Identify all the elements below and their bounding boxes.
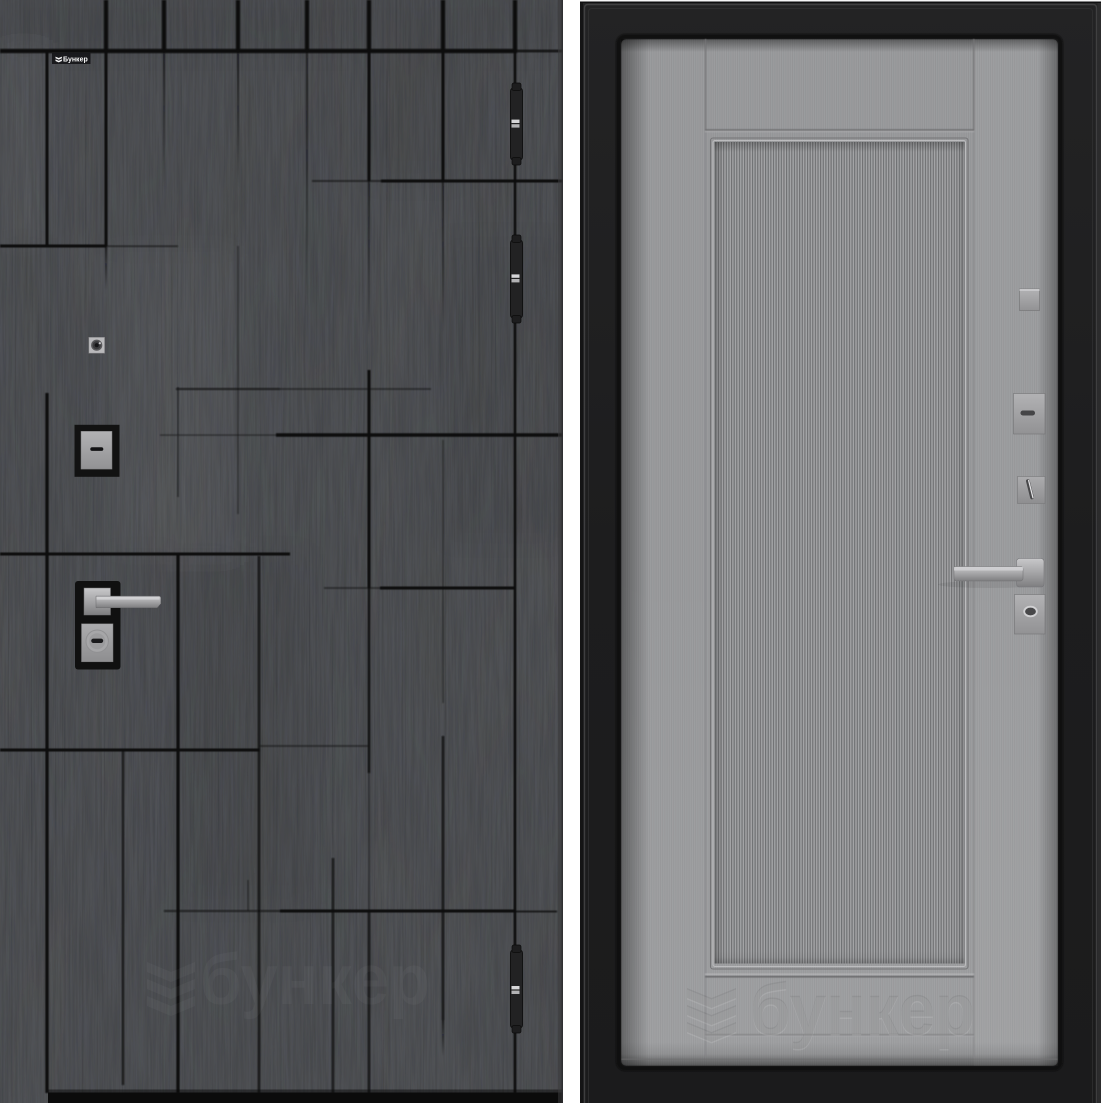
svg-text:Бункер: Бункер [63,57,88,64]
svg-text:бункер: бункер [200,941,430,1020]
svg-text:бункер: бункер [750,970,975,1050]
